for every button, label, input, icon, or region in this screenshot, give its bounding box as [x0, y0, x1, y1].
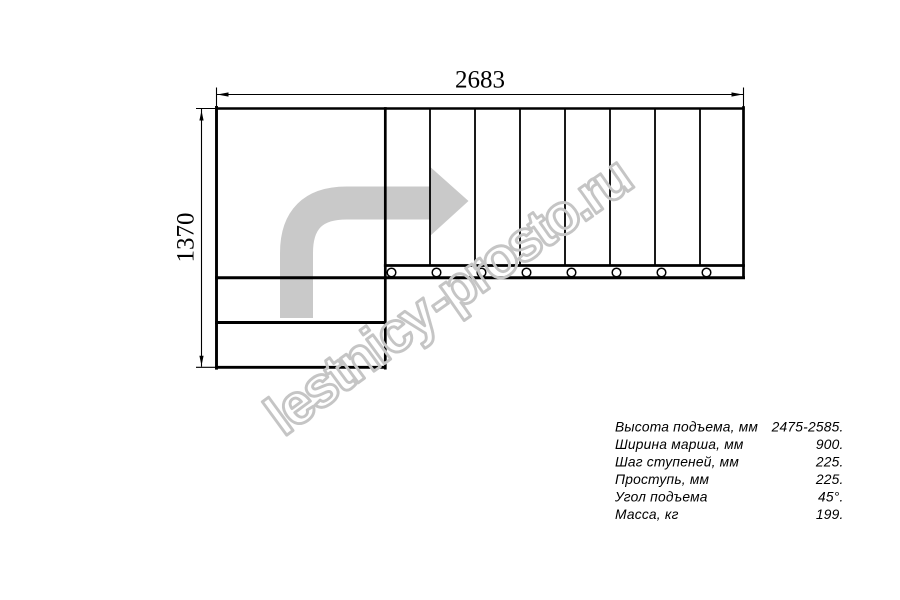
svg-text:45°.: 45°. — [818, 490, 844, 505]
svg-text:Угол подъема: Угол подъема — [614, 490, 708, 505]
svg-text:900.: 900. — [816, 437, 844, 452]
svg-text:Шаг ступеней, мм: Шаг ступеней, мм — [615, 455, 739, 470]
svg-text:Масса, кг: Масса, кг — [615, 507, 679, 522]
svg-text:225.: 225. — [815, 455, 844, 470]
svg-text:2475-2585.: 2475-2585. — [771, 420, 844, 435]
svg-text:Ширина марша, мм: Ширина марша, мм — [615, 437, 744, 452]
svg-text:1370: 1370 — [173, 213, 200, 263]
svg-text:Высота подъема, мм: Высота подъема, мм — [615, 420, 758, 435]
svg-text:2683: 2683 — [455, 67, 505, 94]
svg-text:199.: 199. — [816, 507, 844, 522]
svg-text:Проступь, мм: Проступь, мм — [615, 472, 710, 487]
svg-text:225.: 225. — [815, 472, 844, 487]
